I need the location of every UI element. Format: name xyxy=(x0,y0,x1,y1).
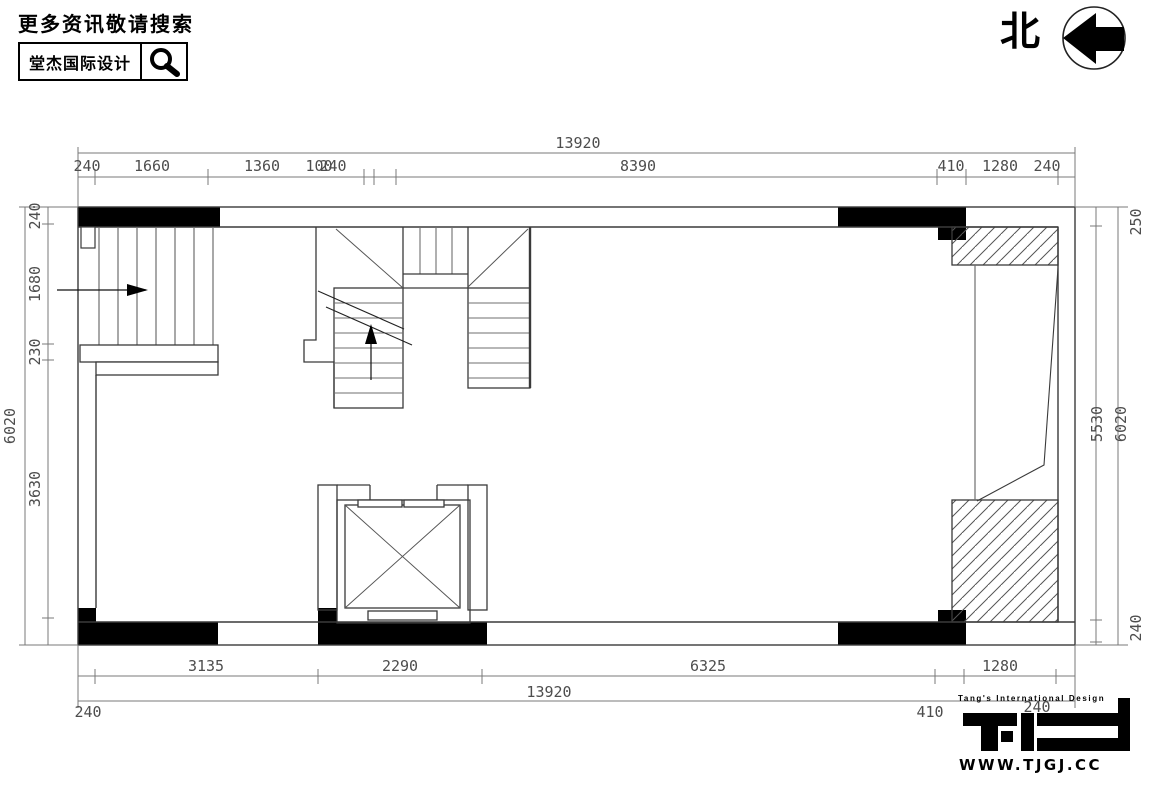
stair-direction-arrow-up xyxy=(365,324,377,380)
dim-bottom-240a: 240 xyxy=(74,703,101,721)
dim-top-1280: 1280 xyxy=(982,157,1018,175)
dim-bottom-3135: 3135 xyxy=(188,657,224,675)
dim-top-240b: 240 xyxy=(319,157,346,175)
elevator-shaft xyxy=(318,485,487,623)
tid-website: WWW.TJGJ.CC xyxy=(959,756,1102,774)
dim-top-overall: 13920 xyxy=(555,134,600,152)
tid-logo: Tang's International Design WWW.TJGJ.CC xyxy=(955,692,1140,787)
dim-left-240: 240 xyxy=(26,202,44,229)
dim-top-8390: 8390 xyxy=(620,157,656,175)
hatched-area-right xyxy=(952,227,1058,622)
staircase-left xyxy=(57,227,218,375)
dim-top-240c: 240 xyxy=(1033,157,1060,175)
dim-top-240a: 240 xyxy=(73,157,100,175)
wall-fills xyxy=(78,207,966,645)
floor-plan-page: 更多资讯敬请搜索 堂杰国际设计 北 xyxy=(0,0,1158,800)
dim-right-240: 240 xyxy=(1127,614,1145,641)
dim-top-410: 410 xyxy=(937,157,964,175)
dim-left-3630: 3630 xyxy=(26,471,44,507)
dim-bottom-overall: 13920 xyxy=(526,683,571,701)
slope-line xyxy=(977,268,1058,501)
stair-direction-arrow-left xyxy=(57,284,148,296)
dim-bottom-6325: 6325 xyxy=(690,657,726,675)
dim-left-230: 230 xyxy=(26,338,44,365)
wall-outlines xyxy=(78,207,1075,645)
dim-bottom-1280: 1280 xyxy=(982,657,1018,675)
dim-top-1360: 1360 xyxy=(244,157,280,175)
dim-right-250: 250 xyxy=(1127,208,1145,235)
dim-right-5530: 5530 xyxy=(1088,406,1106,442)
floor-plan-drawing: 13920 240 1660 1360 100 240 8390 410 128… xyxy=(0,0,1158,800)
hatched-area-top xyxy=(952,227,1058,265)
dim-bottom-410: 410 xyxy=(916,703,943,721)
hatched-area-bottom xyxy=(952,500,1058,622)
dim-top-1660: 1660 xyxy=(134,157,170,175)
dim-left-overall: 6020 xyxy=(1,408,19,444)
dim-left-1680: 1680 xyxy=(26,266,44,302)
dim-bottom-2290: 2290 xyxy=(382,657,418,675)
elevator-car xyxy=(345,505,460,608)
staircase-main xyxy=(304,227,530,408)
dim-right-overall: 6020 xyxy=(1112,406,1130,442)
